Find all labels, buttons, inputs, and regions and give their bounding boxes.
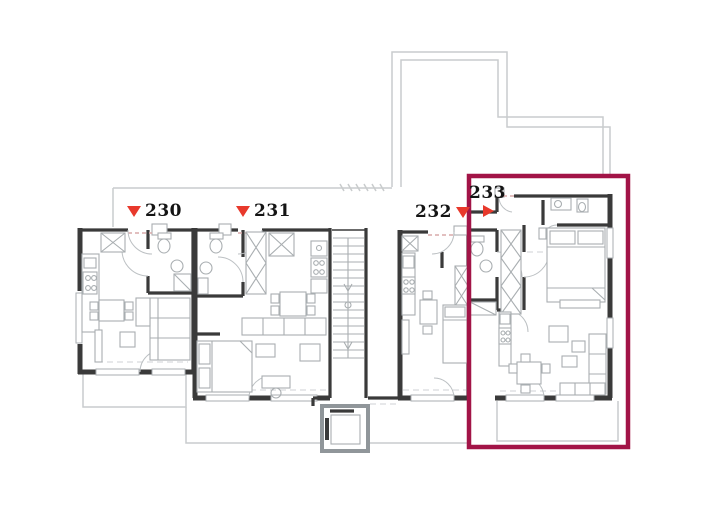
kitchen-sink [500, 314, 510, 324]
floor-plan-drawing [0, 0, 720, 509]
unit-233-bathroom [470, 236, 496, 315]
unit-233-marker-icon [483, 205, 494, 217]
unit-233 [468, 188, 613, 401]
unit-230-bathroom [158, 233, 191, 291]
shelf [198, 278, 208, 294]
sideboard [95, 330, 102, 362]
toilet [210, 233, 223, 239]
unit-label-233[interactable]: 233 [469, 185, 506, 217]
toilet [158, 233, 171, 239]
elevator-car [331, 415, 360, 444]
unit-230 [76, 224, 195, 375]
coffee-table [120, 332, 135, 347]
unit-233-ensuite [551, 198, 588, 212]
unit-label-230[interactable]: 230 [127, 203, 182, 220]
bed-bench [560, 300, 600, 308]
sink [480, 260, 492, 272]
sofa-bed [150, 298, 190, 360]
sofa [560, 383, 605, 395]
building-outline [113, 52, 610, 227]
unit-232-furniture [402, 236, 468, 363]
kitchen-counter [311, 279, 327, 293]
stove [311, 258, 327, 277]
table [420, 300, 437, 324]
dressing-table [262, 376, 290, 388]
elevator-machinery [325, 418, 329, 440]
sideboard [402, 320, 409, 354]
unit-230-number: 230 [145, 203, 182, 220]
unit-233-furniture [499, 228, 606, 395]
unit-231-bathroom [198, 233, 223, 294]
unit-233-number: 233 [469, 185, 506, 202]
dining-table [280, 292, 306, 316]
floor-plan: 230 231 232 233 [0, 0, 720, 509]
unit-230-furniture [82, 233, 190, 362]
coffee-table [256, 344, 275, 357]
unit-232-number: 232 [415, 204, 452, 221]
armchair [300, 344, 320, 361]
unit-231-number: 231 [254, 203, 291, 220]
coffee-table [562, 356, 577, 367]
wardrobe [246, 232, 266, 294]
armchair [549, 326, 568, 342]
unit-label-232[interactable]: 232 [415, 204, 470, 221]
unit-232 [398, 226, 470, 401]
unit-label-231[interactable]: 231 [236, 203, 291, 220]
kitchen-sink [403, 256, 414, 268]
dining-table [99, 300, 124, 321]
kitchen-sink [84, 258, 96, 268]
unit-231-marker-icon [236, 206, 250, 217]
nightstand [539, 228, 546, 239]
elevator [322, 406, 368, 451]
sink [171, 260, 183, 272]
unit-232-marker-icon [456, 207, 470, 218]
dining-table [517, 362, 541, 384]
toilet [471, 236, 484, 242]
unit-230-marker-icon [127, 206, 141, 217]
kitchen-sink [311, 241, 327, 256]
side-table [572, 341, 585, 352]
unit-231-furniture [197, 232, 327, 398]
wardrobe [455, 266, 468, 306]
unit-231 [193, 224, 330, 401]
sink [200, 262, 212, 274]
